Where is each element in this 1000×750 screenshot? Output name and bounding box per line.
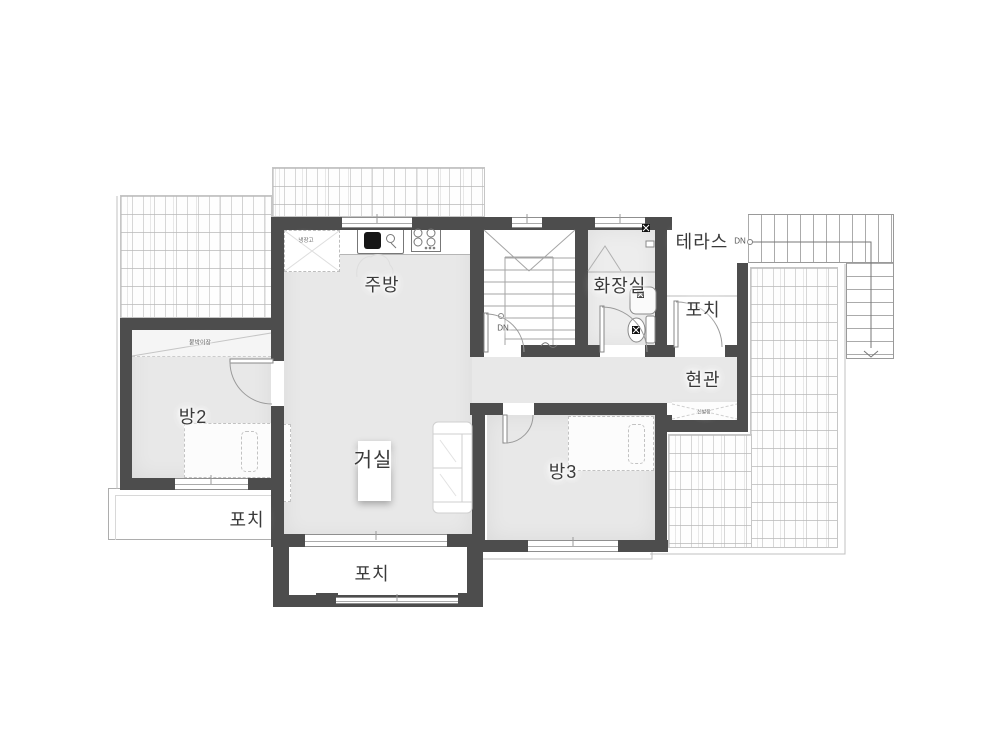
wall-room2-top [120,318,284,330]
faucet-icon [386,234,395,243]
wall-stair-left [470,217,484,357]
label-terrace-dn: DN [734,237,746,246]
front-door-opening [675,345,725,357]
label-room3: 방3 [549,458,578,484]
porchB-post-right [458,593,483,607]
cooktop [411,227,441,252]
roof-left-upper [272,167,485,217]
stair-window [512,217,542,228]
room2-door-opening [271,361,284,406]
wall-room3-top [470,403,667,415]
label-entrance: 현관 [685,366,720,392]
bathroom-window [595,217,645,228]
label-closet: 붙박이장 [189,338,211,347]
wall-room3-right [655,403,667,552]
wall-bath-left [575,217,588,347]
roof-right-lower [668,434,752,548]
label-bathroom: 화장실 [594,272,647,298]
exterior-stairs-top-run [748,214,894,263]
wall-bath-right [655,217,667,357]
label-refrigerator: 냉장고 [298,236,313,244]
bathroom-door-opening [600,345,645,357]
porchB-window [336,597,458,604]
living-window [305,534,447,547]
room2-bed [184,423,275,478]
label-kitchen: 주방 [364,271,399,297]
label-porch-left: 포치 [229,506,264,532]
wall-room3-left [472,403,485,552]
ground-step-line [483,552,652,559]
room2-window [175,478,248,490]
label-porch-right: 포치 [685,296,720,322]
label-living: 거실 [354,444,393,473]
room3-door-opening [503,403,534,415]
kitchen-window [342,217,412,228]
wall-porch-right [737,263,748,432]
room3-bed-pillow [628,424,645,464]
label-stair-dn: DN [497,324,509,333]
floor-plan: 주방 화장실 테라스 DN 포치 현관 신발장 방2 붙박이장 거실 방3 포치… [0,0,1000,750]
label-shoe-cabinet: 신발장 [697,409,711,416]
tv-cabinet [283,424,291,502]
room3-window [528,540,618,552]
room2-bed-pillow [241,431,258,472]
porchB-post-left [316,593,338,607]
label-room2: 방2 [179,403,208,429]
sink-basin [364,232,381,249]
roof-right-main [750,267,838,548]
roof-left-lower [120,195,272,318]
wall-room2-left [120,318,132,490]
exterior-stairs-right-run [846,263,894,359]
label-terrace: 테라스 [676,228,729,254]
label-porch-bottom: 포치 [354,560,389,586]
